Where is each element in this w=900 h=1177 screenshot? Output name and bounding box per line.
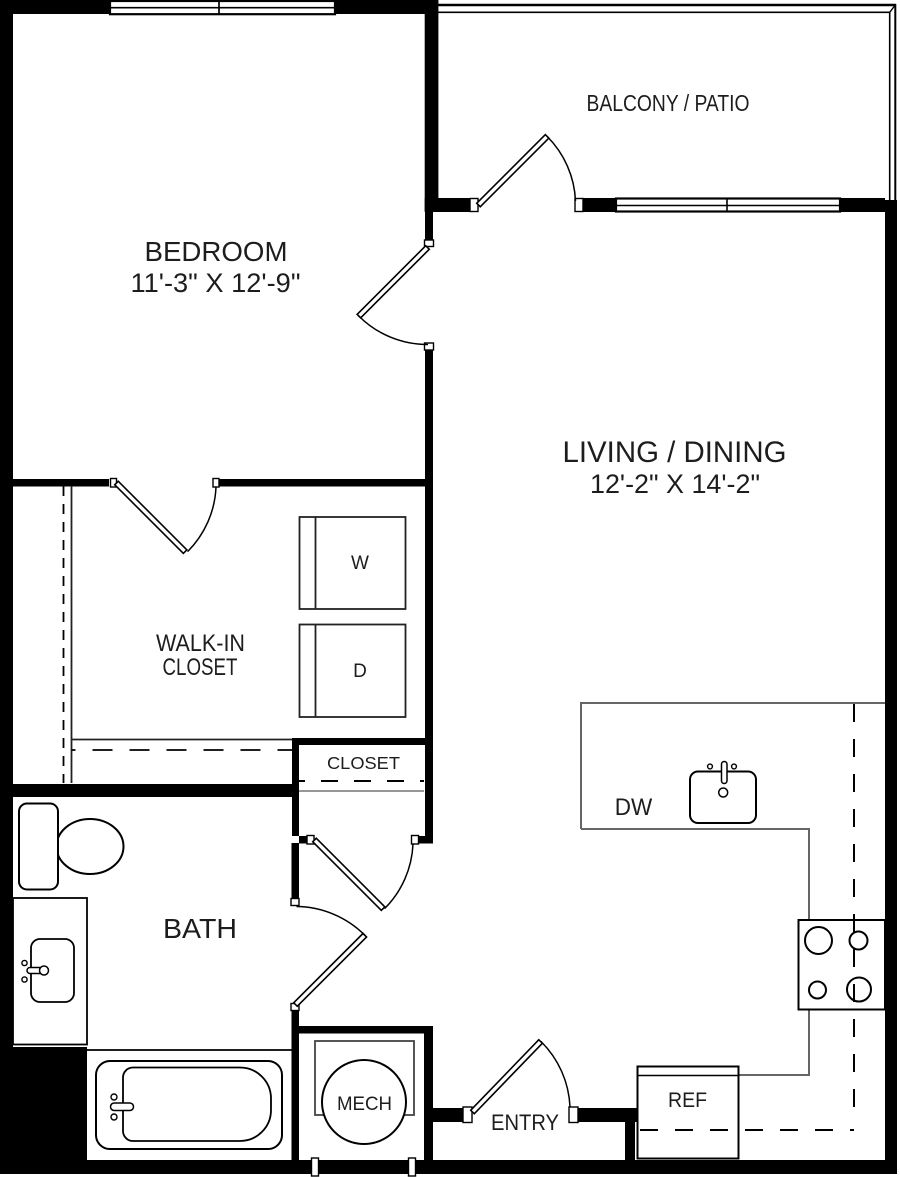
svg-text:LIVING / DINING: LIVING / DINING — [563, 436, 787, 469]
svg-text:W: W — [351, 553, 369, 574]
svg-text:BEDROOM: BEDROOM — [145, 236, 288, 267]
svg-text:11'-3" X 12'-9": 11'-3" X 12'-9" — [131, 268, 301, 298]
svg-text:BALCONY / PATIO: BALCONY / PATIO — [587, 90, 750, 116]
svg-text:CLOSET: CLOSET — [163, 654, 238, 681]
svg-text:D: D — [353, 661, 367, 682]
svg-text:WALK-IN: WALK-IN — [156, 630, 245, 657]
svg-text:DW: DW — [615, 794, 653, 821]
svg-text:CLOSET: CLOSET — [327, 753, 400, 773]
svg-text:ENTRY: ENTRY — [491, 1110, 559, 1135]
svg-text:BATH: BATH — [163, 913, 237, 944]
svg-text:12'-2" X 14'-2": 12'-2" X 14'-2" — [590, 469, 760, 499]
svg-text:REF: REF — [668, 1089, 707, 1112]
svg-text:MECH: MECH — [337, 1093, 392, 1115]
